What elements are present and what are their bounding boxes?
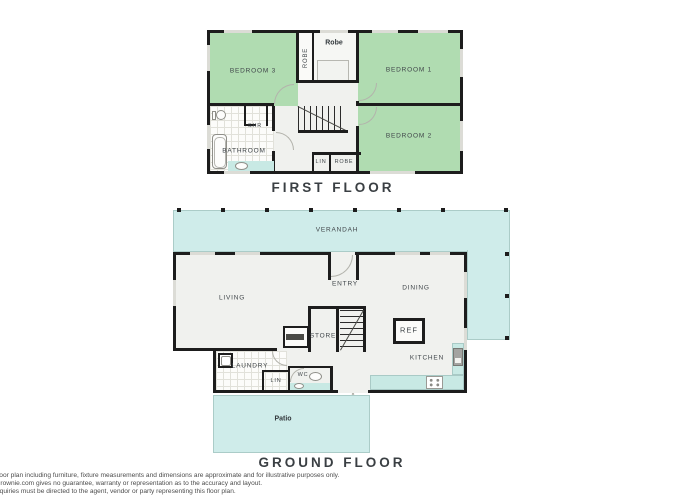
window-marker xyxy=(464,328,467,350)
wall-segment xyxy=(336,306,339,352)
first-floor-title: FIRST FLOOR xyxy=(272,180,395,195)
wall-segment xyxy=(272,106,275,131)
label-robe-bottom: ROBE xyxy=(335,159,354,165)
label-robe-top: Robe xyxy=(325,40,343,47)
label-living: LIVING xyxy=(219,295,245,302)
window-marker xyxy=(235,252,260,255)
verandah-post xyxy=(505,336,509,340)
oven xyxy=(453,348,463,366)
verandah-post xyxy=(504,208,508,212)
kitchen-counter xyxy=(370,375,464,390)
wall-segment xyxy=(358,103,460,106)
floor-plan-page: BEDROOM 3 BEDROOM 1 BEDROOM 2 BATHROOM S… xyxy=(0,0,700,500)
ground-floor-title: GROUND FLOOR xyxy=(259,455,406,470)
label-laundry: LAUNDRY xyxy=(232,363,269,370)
verandah-side-area xyxy=(467,250,510,340)
wall-segment xyxy=(356,126,359,171)
wc-toilet xyxy=(309,372,322,381)
verandah-post xyxy=(441,208,445,212)
wall-segment xyxy=(329,152,331,171)
wall-segment xyxy=(288,366,333,368)
verandah-post xyxy=(397,208,401,212)
window-marker xyxy=(395,252,420,255)
laundry-tub-basin xyxy=(221,356,231,366)
label-wc: WC xyxy=(298,372,309,378)
wall-segment xyxy=(312,152,361,155)
verandah-post xyxy=(265,208,269,212)
disclaimer-line1: floor plan including furniture, fixture … xyxy=(0,472,339,480)
label-robe-left: ROBE xyxy=(303,48,309,68)
wall-segment xyxy=(363,306,366,352)
disclaimer-text: floor plan including furniture, fixture … xyxy=(0,472,339,496)
label-shr: SHR xyxy=(248,123,262,129)
label-patio: Patio xyxy=(274,416,291,423)
window-marker xyxy=(224,171,250,174)
wall-segment xyxy=(262,370,264,390)
wall-segment xyxy=(266,106,268,126)
wall-segment xyxy=(356,255,359,280)
wall-segment xyxy=(216,348,277,351)
window-marker xyxy=(418,30,448,33)
verandah-post xyxy=(309,208,313,212)
wall-segment xyxy=(356,33,359,83)
disclaimer-line3: nquiries must be directed to the agent, … xyxy=(0,488,339,496)
label-bathroom: BATHROOM xyxy=(222,148,265,155)
wall-segment xyxy=(312,33,314,80)
label-bedroom1: BEDROOM 1 xyxy=(386,67,432,74)
verandah-post xyxy=(505,294,509,298)
label-verandah: VERANDAH xyxy=(316,227,359,234)
wall-segment xyxy=(244,106,246,126)
label-ref: REF xyxy=(400,326,418,335)
wall-segment xyxy=(330,366,333,393)
window-marker xyxy=(320,30,348,33)
wall-segment xyxy=(262,370,290,372)
window-marker xyxy=(370,171,415,174)
door-arc xyxy=(276,132,294,150)
first-floor-plan: BEDROOM 3 BEDROOM 1 BEDROOM 2 BATHROOM S… xyxy=(207,30,463,174)
window-marker xyxy=(190,252,215,255)
verandah-post xyxy=(177,208,181,212)
window-marker xyxy=(224,30,252,33)
verandah-post xyxy=(221,208,225,212)
window-marker xyxy=(460,49,463,77)
wall-segment xyxy=(296,33,299,83)
label-lin-gf: LIN xyxy=(271,378,282,384)
robe-shelf xyxy=(317,60,349,81)
oven-door xyxy=(455,358,461,363)
verandah-post xyxy=(353,208,357,212)
label-store: STORE xyxy=(310,333,336,340)
wall-segment xyxy=(296,80,359,83)
fireplace-band xyxy=(286,334,304,340)
window-marker xyxy=(464,272,467,298)
window-marker xyxy=(207,125,210,149)
wall-segment xyxy=(312,152,314,171)
label-bedroom3: BEDROOM 3 xyxy=(230,68,276,75)
label-kitchen: KITCHEN xyxy=(410,355,444,362)
label-lin-ff: LIN xyxy=(316,159,327,165)
window-marker xyxy=(173,280,176,306)
patio-area xyxy=(213,395,370,453)
wc-sink xyxy=(294,383,304,389)
label-bedroom2: BEDROOM 2 xyxy=(386,133,432,140)
window-marker xyxy=(372,30,398,33)
disclaimer-line2: Brownie.com gives no guarantee, warranty… xyxy=(0,480,339,488)
wall-segment xyxy=(173,348,216,351)
wall-segment xyxy=(298,130,348,133)
label-dining: DINING xyxy=(402,285,430,292)
verandah-post xyxy=(505,252,509,256)
label-entry: ENTRY xyxy=(332,281,358,288)
toilet-bowl xyxy=(216,110,226,120)
stove xyxy=(426,376,443,389)
wall-segment xyxy=(210,103,274,106)
wall-segment xyxy=(173,252,467,255)
window-marker xyxy=(460,121,463,151)
window-marker xyxy=(207,45,210,71)
ground-floor-plan: REF Patio VERANDAH LIVING ENTRY DINING S… xyxy=(173,208,510,455)
window-marker xyxy=(430,252,450,255)
bathroom-sink xyxy=(235,162,248,170)
wall-segment xyxy=(213,348,216,393)
